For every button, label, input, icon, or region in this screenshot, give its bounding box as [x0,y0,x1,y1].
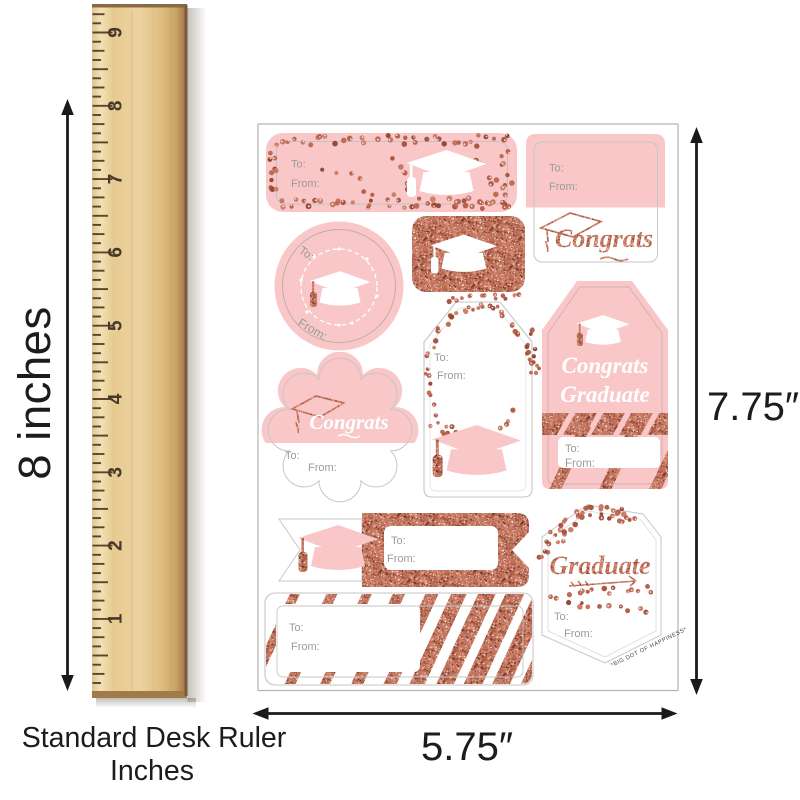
svg-text:8: 8 [106,101,127,112]
svg-text:Congrats: Congrats [555,224,653,253]
svg-text:8 inches: 8 inches [9,306,60,479]
svg-text:9: 9 [106,27,127,38]
svg-text:To:: To: [285,450,300,462]
svg-text:Graduate: Graduate [549,551,650,580]
svg-text:From:: From: [291,641,320,653]
svg-text:To:: To: [289,622,304,634]
svg-text:6: 6 [106,247,127,258]
svg-text:7: 7 [106,174,127,185]
svg-text:Inches: Inches [110,755,194,787]
svg-text:From:: From: [564,628,593,640]
svg-text:From:: From: [549,181,578,193]
svg-text:To:: To: [549,163,564,175]
svg-text:From:: From: [308,462,337,474]
svg-text:Congrats: Congrats [309,410,388,434]
svg-text:To:: To: [554,611,569,623]
svg-text:From:: From: [291,178,320,190]
svg-text:To:: To: [291,159,306,171]
svg-text:To:: To: [565,443,580,455]
svg-text:To:: To: [434,352,449,364]
svg-text:Congrats: Congrats [562,353,649,378]
svg-text:1: 1 [106,613,127,624]
svg-text:From:: From: [387,553,416,565]
svg-text:To:: To: [391,535,406,547]
svg-text:2: 2 [106,540,127,551]
svg-text:7.75″: 7.75″ [707,385,799,429]
svg-text:Standard Desk Ruler: Standard Desk Ruler [22,722,287,754]
svg-text:3: 3 [106,467,127,478]
svg-text:From:: From: [437,370,466,382]
svg-text:Graduate: Graduate [560,382,649,407]
svg-text:From:: From: [565,458,595,470]
svg-text:5: 5 [106,320,127,331]
svg-text:4: 4 [106,393,127,404]
svg-text:5.75″: 5.75″ [421,725,513,769]
